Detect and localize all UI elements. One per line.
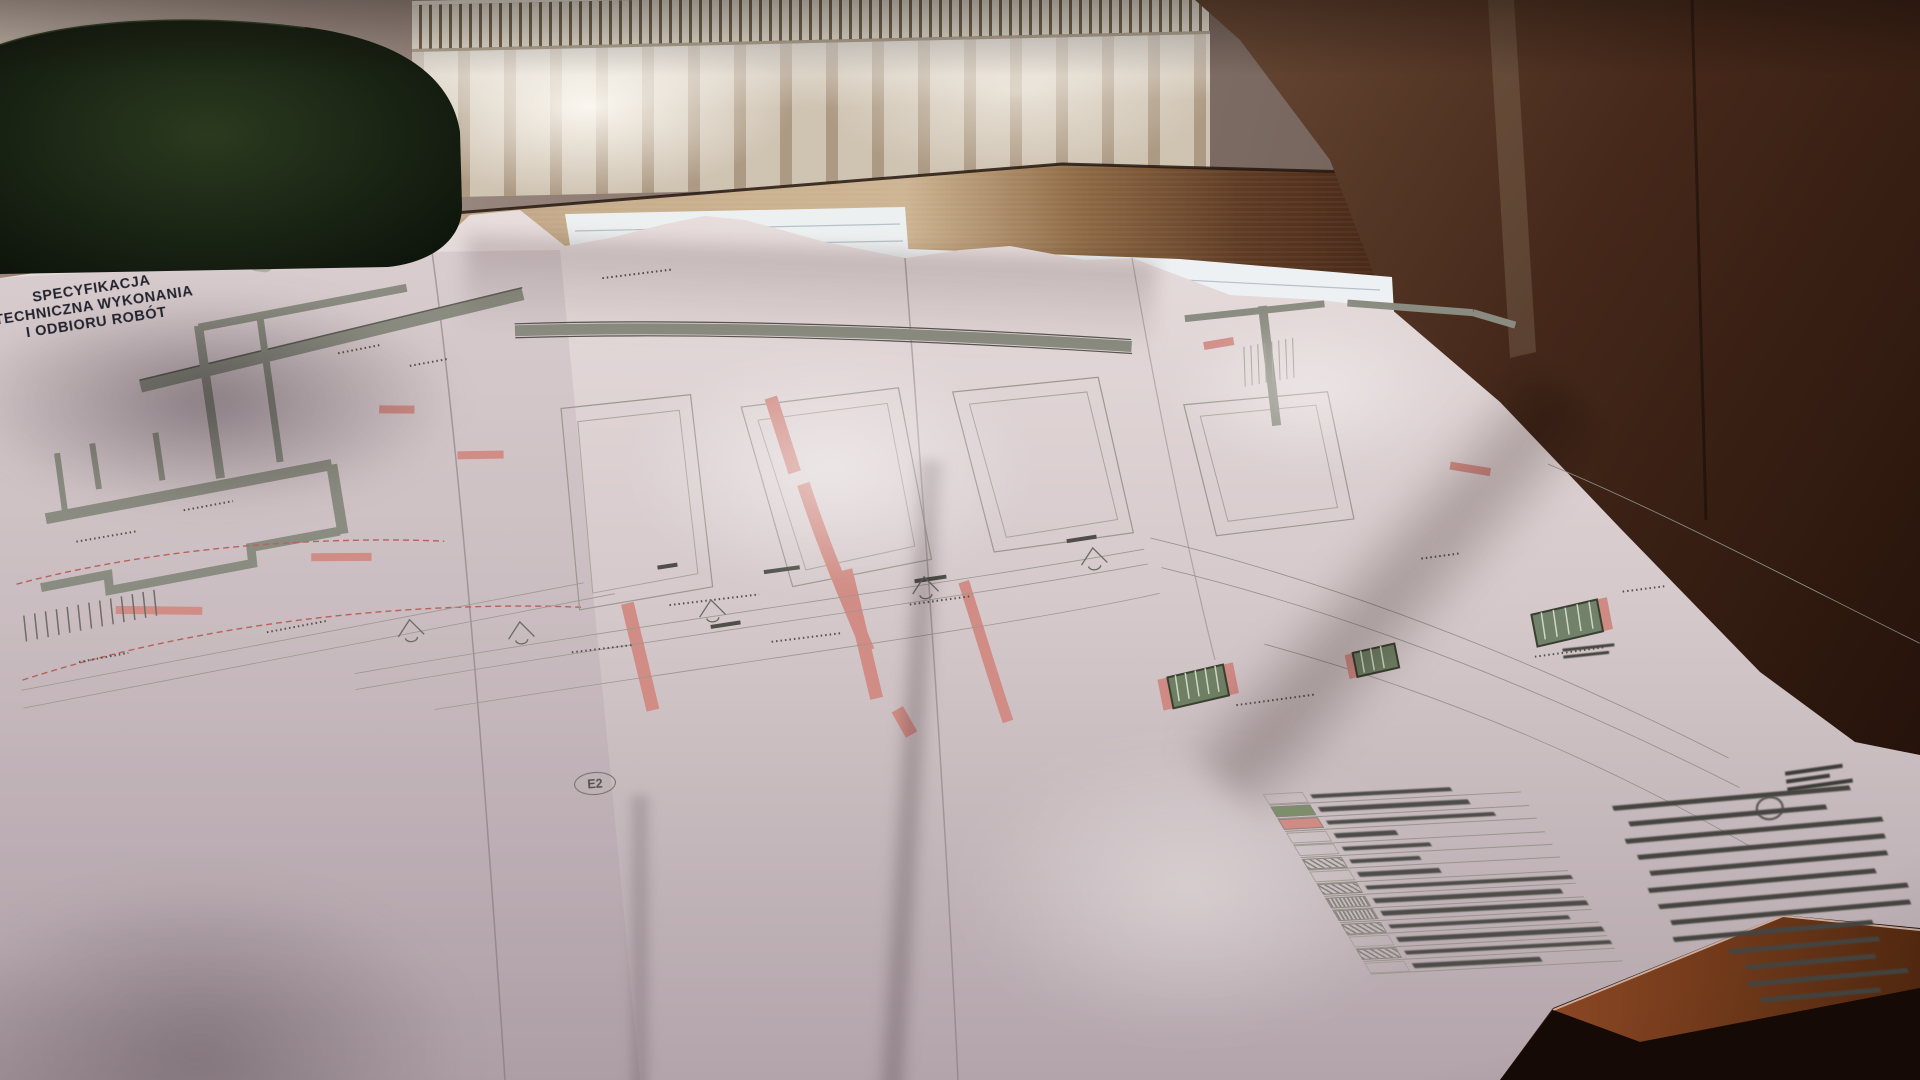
legend-swatch (1270, 805, 1316, 818)
notes-text-line (1729, 936, 1880, 953)
legend-entry-text (1341, 842, 1432, 851)
plan-centre-halls (334, 245, 1166, 764)
legend-swatch (1309, 870, 1355, 883)
legend-swatch (1356, 948, 1402, 961)
small-note-line (1563, 651, 1609, 659)
notes-text-line (1628, 804, 1827, 826)
photo-blueprints-on-table: SPECYFIKACJA TECHNICZNA WYKONANIA I ODBI… (0, 0, 1920, 1080)
blueprint-linework (0, 0, 1920, 1080)
passage-block-c (1531, 597, 1614, 647)
legend-entry-text (1334, 830, 1399, 838)
notes-text-line (1745, 954, 1876, 970)
legend-swatch (1317, 883, 1363, 896)
legend-swatch (1301, 857, 1347, 870)
notes-text-line (1747, 968, 1908, 986)
legend-swatch (1325, 896, 1371, 909)
legend-swatch (1341, 922, 1387, 935)
legend-swatch (1364, 961, 1410, 974)
legend-entry-text (1357, 868, 1442, 877)
legend-entry-text (1349, 856, 1422, 864)
passage-block-a (1157, 662, 1240, 711)
notes-text-line (1760, 987, 1881, 1002)
legend-swatch (1294, 844, 1340, 857)
legend-entry-text (1412, 957, 1542, 968)
legend-swatch (1333, 909, 1379, 922)
passage-block-b (1344, 643, 1399, 679)
legend-swatch (1286, 831, 1332, 844)
legend-swatch (1348, 935, 1394, 948)
legend-swatch (1262, 792, 1308, 805)
legend-swatch (1278, 818, 1324, 831)
